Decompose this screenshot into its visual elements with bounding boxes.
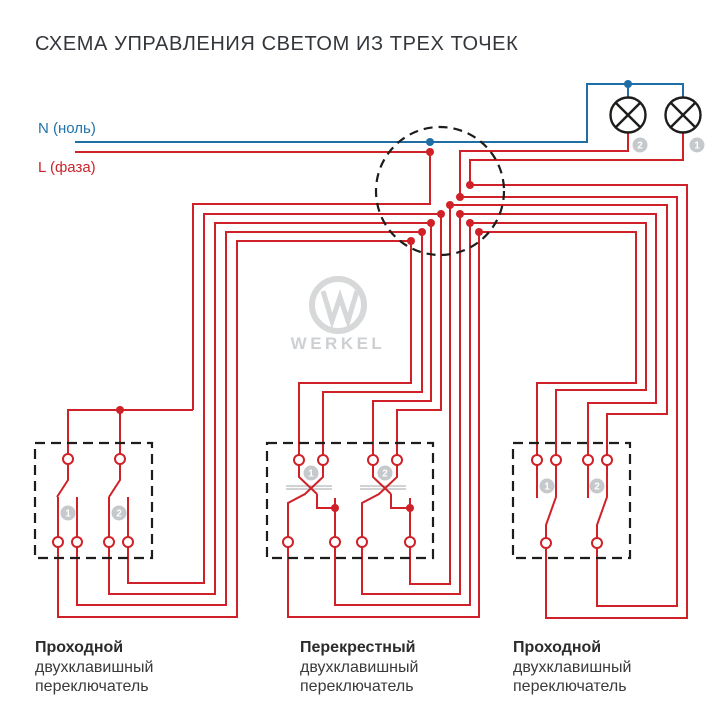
wire-left2b-cross [128, 214, 441, 583]
neutral-junction-dot [426, 138, 434, 146]
wire-left2a-cross [109, 223, 431, 594]
neutral-label: N (ноль) [38, 120, 96, 137]
lamp-1-badge-number: 1 [694, 141, 700, 152]
phase-label: L (фаза) [38, 159, 96, 176]
wire-left1a-cross [58, 241, 411, 617]
page-title: СХЕМА УПРАВЛЕНИЯ СВЕТОМ ИЗ ТРЕХ ТОЧЕК [35, 33, 518, 55]
left-key-2-number: 2 [116, 509, 122, 520]
caption-right-line2: двухклавишный [513, 659, 631, 676]
caption-middle-line3: переключатель [300, 678, 414, 695]
right-key-2-number: 2 [594, 482, 600, 493]
switch-box-left: 1 2 [35, 443, 152, 558]
lamp-2-badge-number: 2 [637, 141, 643, 152]
caption-right-line3: переключатель [513, 678, 627, 695]
left-key-1-number: 1 [65, 509, 71, 520]
wiring-diagram-page: СХЕМА УПРАВЛЕНИЯ СВЕТОМ ИЗ ТРЕХ ТОЧЕК WE… [0, 0, 720, 720]
middle-key-1-number: 1 [308, 469, 314, 480]
caption-middle-line1: Перекрестный [300, 639, 415, 656]
wire-cross2b-right [410, 205, 667, 584]
right-key-1-number: 1 [544, 482, 550, 493]
wire-lamp2-circuit [460, 133, 677, 606]
middle-key-2-number: 2 [382, 469, 388, 480]
caption-right-line1: Проходной [513, 639, 601, 656]
caption-left-line1: Проходной [35, 639, 123, 656]
switch-box-right: 1 2 [513, 443, 630, 558]
switch-box-middle: 1 2 [267, 443, 433, 558]
lamp-1: 1 [666, 98, 705, 153]
werkel-watermark: WERKEL [291, 279, 386, 353]
werkel-logo-w-icon [323, 291, 357, 321]
caption-left-line3: переключатель [35, 678, 149, 695]
caption-middle-line2: двухклавишный [300, 659, 418, 676]
caption-left-line2: двухклавишный [35, 659, 153, 676]
caption-right: Проходной двухклавишный переключатель [513, 639, 631, 695]
caption-middle: Перекрестный двухклавишный переключатель [300, 639, 418, 695]
wire-cross2a-right [362, 214, 656, 594]
wiring-diagram: СХЕМА УПРАВЛЕНИЯ СВЕТОМ ИЗ ТРЕХ ТОЧЕК WE… [0, 0, 720, 720]
werkel-watermark-text: WERKEL [291, 334, 386, 353]
neutral-branch-dot [624, 80, 632, 88]
neutral-wire [75, 80, 683, 146]
caption-left: Проходной двухклавишный переключатель [35, 639, 153, 695]
junction-dots [116, 148, 483, 414]
